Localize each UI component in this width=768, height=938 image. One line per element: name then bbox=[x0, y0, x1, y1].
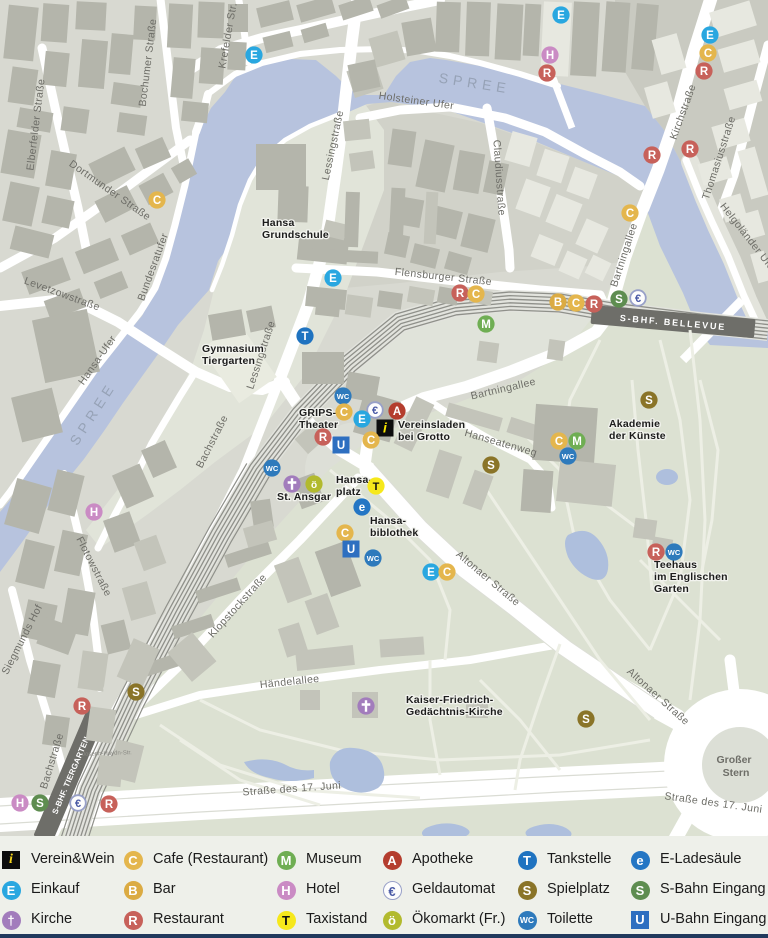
svg-text:E: E bbox=[250, 50, 258, 62]
svg-text:E: E bbox=[557, 10, 565, 22]
svg-text:H: H bbox=[546, 50, 554, 62]
svg-text:C: C bbox=[367, 435, 375, 447]
svg-text:R: R bbox=[319, 432, 328, 444]
svg-text:C: C bbox=[626, 208, 634, 220]
svg-text:WC: WC bbox=[668, 548, 681, 557]
svg-text:R: R bbox=[590, 299, 599, 311]
svg-text:WC: WC bbox=[367, 554, 380, 563]
svg-text:Gedächtnis-Kirche: Gedächtnis-Kirche bbox=[406, 706, 503, 718]
svg-text:WC: WC bbox=[337, 392, 350, 401]
svg-text:Grundschule: Grundschule bbox=[262, 229, 329, 241]
svg-text:C: C bbox=[555, 436, 563, 448]
svg-text:U: U bbox=[347, 544, 355, 556]
svg-text:C: C bbox=[341, 528, 349, 540]
svg-text:M: M bbox=[481, 319, 491, 331]
svg-text:Teehaus: Teehaus bbox=[654, 559, 697, 571]
svg-text:€: € bbox=[635, 293, 641, 305]
svg-text:der Künste: der Künste bbox=[609, 430, 666, 442]
svg-text:C: C bbox=[472, 289, 480, 301]
svg-text:Kaiser-Friedrich-: Kaiser-Friedrich- bbox=[406, 694, 494, 706]
svg-text:bei Grotto: bei Grotto bbox=[398, 431, 450, 443]
svg-text:Akademie: Akademie bbox=[609, 418, 660, 430]
svg-text:E: E bbox=[329, 273, 337, 285]
svg-text:T: T bbox=[373, 481, 380, 493]
svg-text:R: R bbox=[652, 547, 661, 559]
svg-text:C: C bbox=[340, 407, 348, 419]
svg-text:R: R bbox=[78, 701, 87, 713]
svg-text:S: S bbox=[645, 395, 653, 407]
svg-text:im Englischen: im Englischen bbox=[654, 571, 728, 583]
svg-text:Tiergarten: Tiergarten bbox=[202, 355, 255, 367]
svg-text:A: A bbox=[393, 406, 401, 418]
svg-text:S: S bbox=[615, 294, 623, 306]
svg-text:Theater: Theater bbox=[299, 419, 338, 431]
svg-text:Hansa-: Hansa- bbox=[370, 515, 407, 527]
svg-text:S: S bbox=[582, 714, 590, 726]
svg-text:Vereinsladen: Vereinsladen bbox=[398, 419, 465, 431]
svg-text:St. Ansgar: St. Ansgar bbox=[277, 491, 331, 503]
svg-text:€: € bbox=[372, 405, 378, 417]
svg-text:biblothek: biblothek bbox=[370, 527, 418, 539]
svg-text:S: S bbox=[36, 798, 44, 810]
svg-text:T: T bbox=[301, 331, 308, 343]
svg-text:E: E bbox=[706, 30, 714, 42]
svg-text:C: C bbox=[572, 298, 580, 310]
svg-text:Garten: Garten bbox=[654, 583, 689, 595]
svg-text:E: E bbox=[427, 567, 435, 579]
svg-text:Gymnasium: Gymnasium bbox=[202, 343, 264, 355]
svg-text:platz: platz bbox=[336, 486, 361, 498]
svg-text:Stern: Stern bbox=[723, 767, 750, 779]
svg-text:e: e bbox=[359, 502, 365, 514]
svg-text:R: R bbox=[686, 144, 695, 156]
svg-text:GRIPS-: GRIPS- bbox=[299, 407, 337, 419]
svg-text:€: € bbox=[75, 798, 81, 810]
svg-text:U: U bbox=[337, 440, 345, 452]
svg-text:S: S bbox=[487, 460, 495, 472]
svg-text:WC: WC bbox=[562, 452, 575, 461]
svg-text:R: R bbox=[648, 150, 657, 162]
svg-text:Hansa-: Hansa- bbox=[336, 474, 373, 486]
svg-text:H: H bbox=[90, 507, 98, 519]
svg-text:M: M bbox=[572, 436, 582, 448]
svg-text:H: H bbox=[16, 798, 24, 810]
svg-text:B: B bbox=[554, 297, 562, 309]
svg-text:S: S bbox=[132, 687, 140, 699]
svg-text:R: R bbox=[700, 66, 709, 78]
svg-text:E: E bbox=[358, 414, 366, 426]
svg-text:Hansa: Hansa bbox=[262, 217, 295, 229]
svg-text:C: C bbox=[704, 48, 712, 60]
svg-text:R: R bbox=[105, 799, 114, 811]
svg-text:R: R bbox=[456, 288, 465, 300]
svg-text:C: C bbox=[443, 567, 451, 579]
svg-text:ö: ö bbox=[311, 480, 317, 491]
svg-text:Großer: Großer bbox=[716, 754, 751, 766]
svg-text:C: C bbox=[153, 195, 161, 207]
svg-text:R: R bbox=[543, 68, 552, 80]
svg-text:WC: WC bbox=[266, 464, 279, 473]
